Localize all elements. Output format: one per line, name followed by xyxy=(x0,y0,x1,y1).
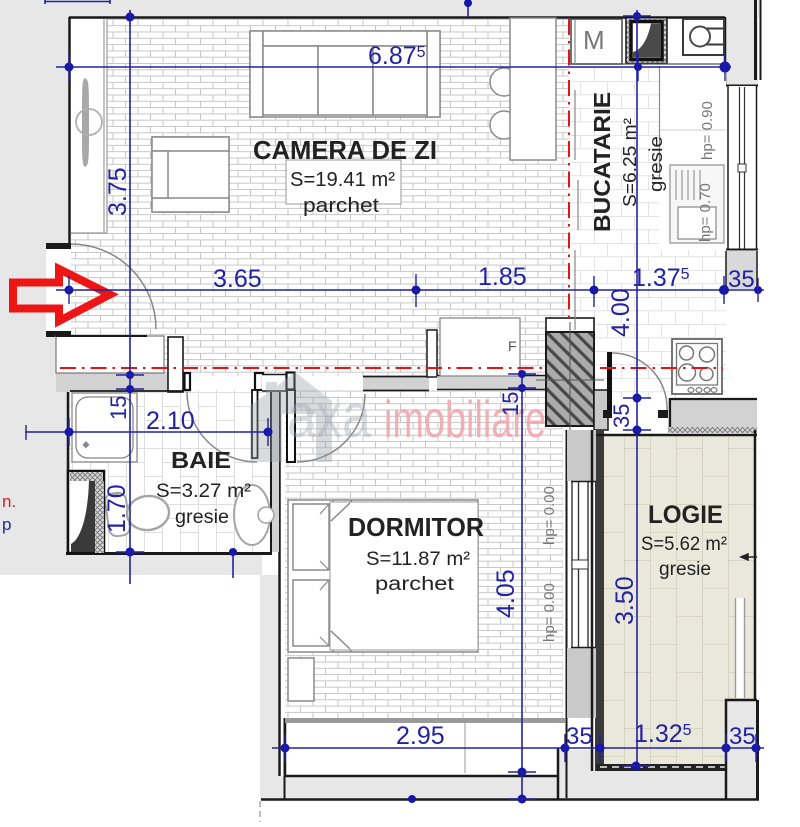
svg-text:35: 35 xyxy=(609,404,634,428)
svg-text:gresie: gresie xyxy=(175,507,229,528)
svg-text:15: 15 xyxy=(106,396,131,420)
svg-text:hp= 0.00: hp= 0.00 xyxy=(541,583,558,642)
svg-text:S=11.87 m²: S=11.87 m² xyxy=(366,549,470,570)
svg-text:S=19.41 m²: S=19.41 m² xyxy=(290,169,395,191)
svg-text:n.: n. xyxy=(2,492,16,511)
svg-text:35: 35 xyxy=(566,723,593,750)
svg-text:axa: axa xyxy=(287,382,371,451)
svg-text:DORMITOR: DORMITOR xyxy=(348,512,484,542)
svg-text:3.75: 3.75 xyxy=(104,167,132,216)
svg-text:3.65: 3.65 xyxy=(213,265,262,293)
svg-text:2.95: 2.95 xyxy=(396,722,445,750)
svg-text:4.05: 4.05 xyxy=(492,569,520,618)
svg-text:parchet: parchet xyxy=(303,195,379,217)
svg-text:4.00: 4.00 xyxy=(607,288,635,337)
svg-text:hp= 0.90: hp= 0.90 xyxy=(699,101,716,160)
svg-text:1.85: 1.85 xyxy=(478,263,527,291)
svg-text:hp= 0.00: hp= 0.00 xyxy=(541,486,558,545)
svg-text:LOGIE: LOGIE xyxy=(648,501,723,529)
svg-text:hp= 0.70: hp= 0.70 xyxy=(697,183,714,242)
svg-text:2.10: 2.10 xyxy=(146,407,195,435)
svg-text:gresie: gresie xyxy=(659,559,711,580)
svg-text:35: 35 xyxy=(728,266,755,293)
svg-text:S=3.27 m²: S=3.27 m² xyxy=(156,481,251,502)
svg-text:BAIE: BAIE xyxy=(171,447,231,473)
svg-text:1.70: 1.70 xyxy=(103,484,131,533)
svg-text:p: p xyxy=(2,515,11,534)
svg-text:3.50: 3.50 xyxy=(611,576,639,625)
svg-text:M: M xyxy=(583,25,605,55)
svg-text:35: 35 xyxy=(729,723,756,750)
svg-text:15: 15 xyxy=(498,392,523,416)
svg-text:S=6.25 m²: S=6.25 m² xyxy=(620,118,640,207)
svg-text:BUCATARIE: BUCATARIE xyxy=(589,92,615,232)
svg-text:gresie: gresie xyxy=(646,136,666,192)
svg-text:parchet: parchet xyxy=(375,574,455,595)
svg-text:F: F xyxy=(508,338,517,354)
svg-text:S=5.62 m²: S=5.62 m² xyxy=(641,534,727,555)
